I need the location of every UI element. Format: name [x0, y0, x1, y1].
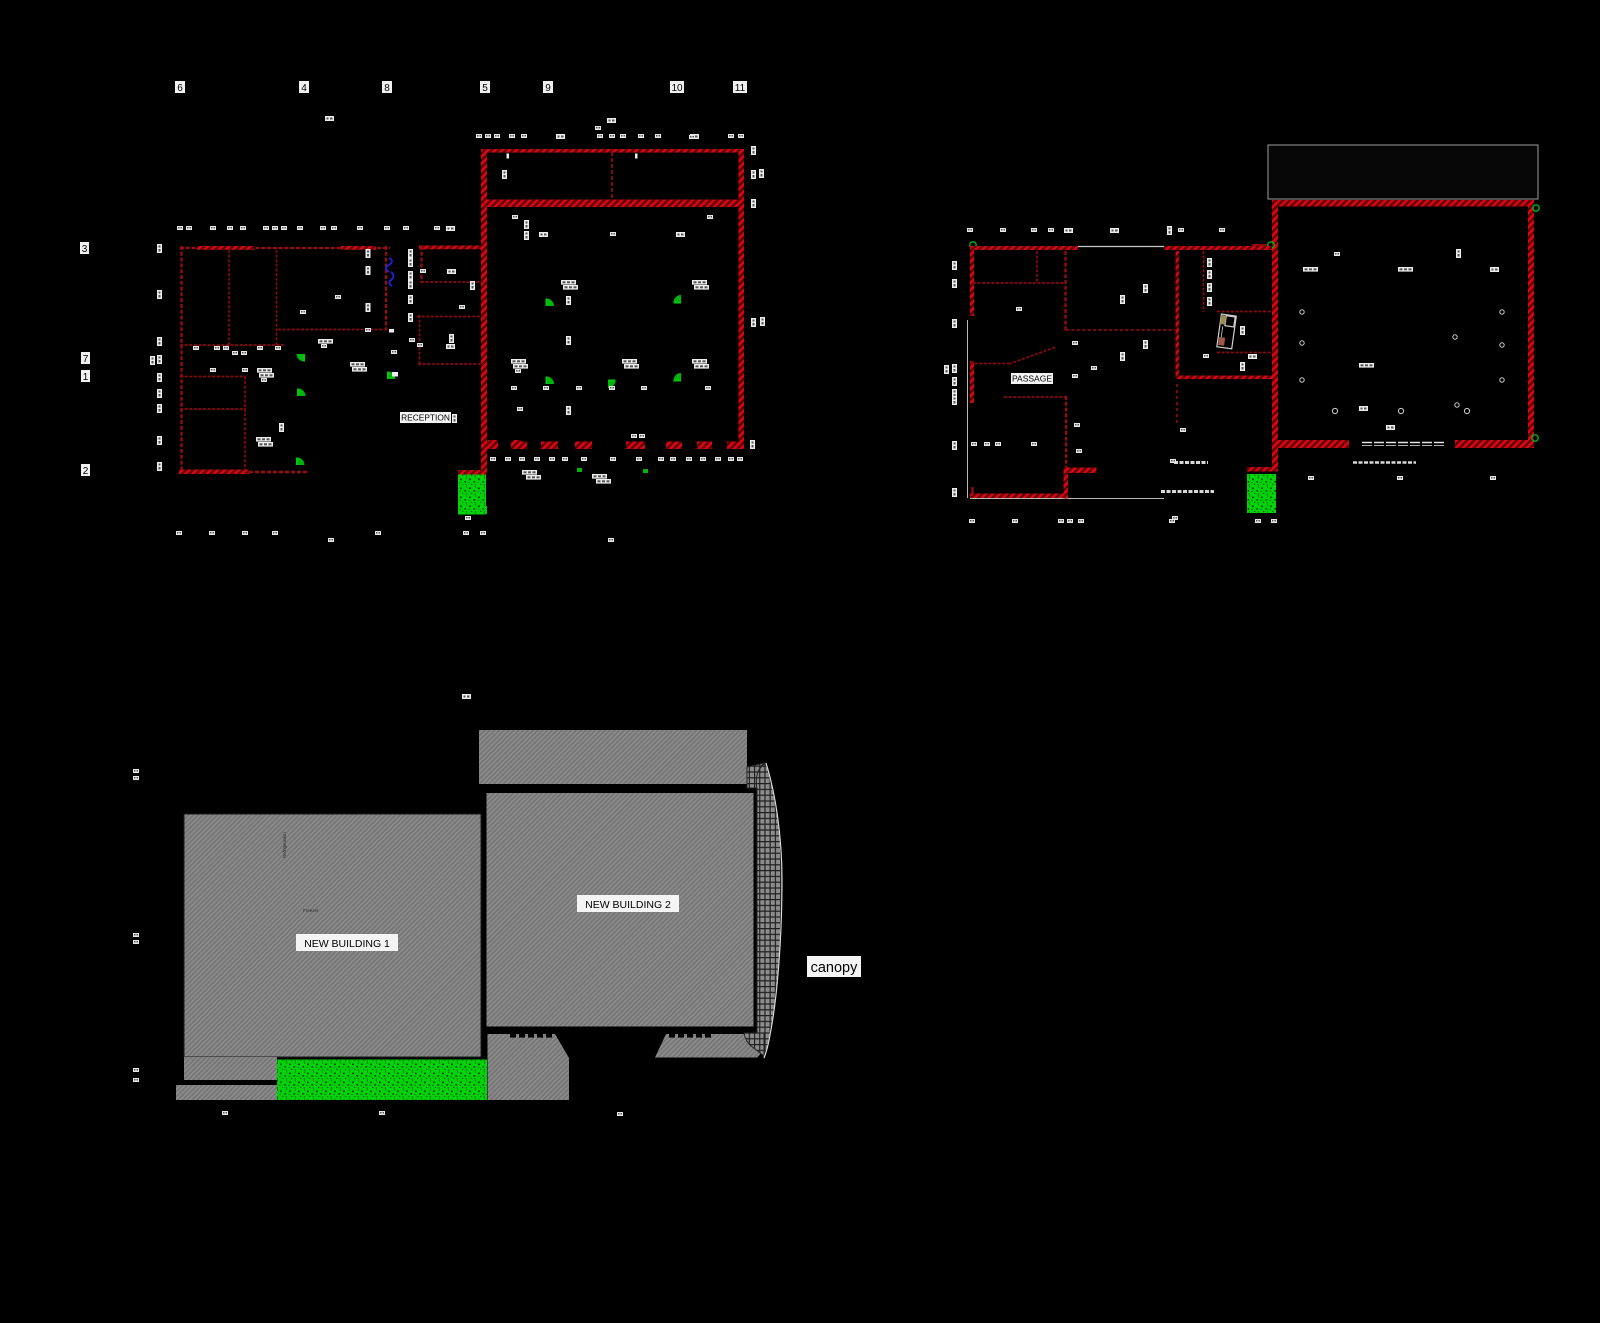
svg-text:6: 6 [177, 83, 183, 94]
svg-text:NEW BUILDING 1: NEW BUILDING 1 [304, 938, 390, 950]
svg-text:5: 5 [482, 83, 488, 94]
svg-text:1: 1 [83, 372, 89, 383]
svg-text:PASSAGE: PASSAGE [1012, 374, 1052, 384]
svg-text:Refrigeration: Refrigeration [282, 832, 287, 858]
svg-text:Freezer: Freezer [303, 908, 319, 913]
svg-text:7: 7 [83, 354, 89, 365]
svg-text:3: 3 [82, 244, 88, 255]
svg-text:NEW BUILDING 2: NEW BUILDING 2 [585, 899, 671, 911]
svg-text:2: 2 [83, 466, 89, 477]
svg-text:RECEPTION: RECEPTION [401, 413, 450, 423]
svg-text:10: 10 [671, 83, 683, 94]
svg-text:8: 8 [384, 83, 390, 94]
svg-text:4: 4 [301, 83, 307, 94]
svg-text:9: 9 [545, 83, 551, 94]
svg-text:11: 11 [735, 83, 746, 94]
svg-text:canopy: canopy [811, 960, 859, 976]
